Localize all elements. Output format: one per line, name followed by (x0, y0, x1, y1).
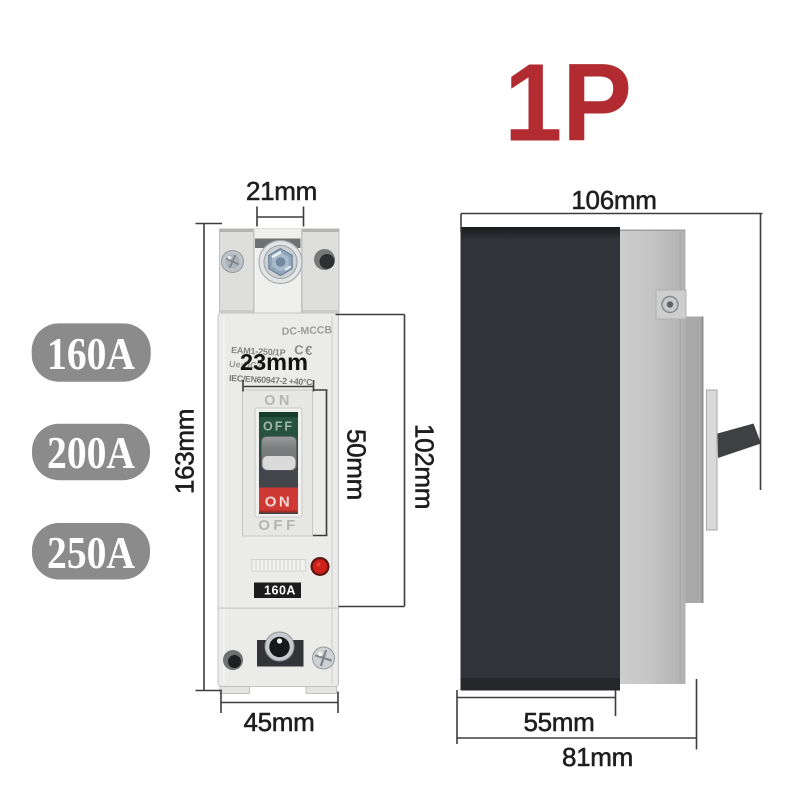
svg-text:163mm: 163mm (170, 409, 200, 494)
svg-text:81mm: 81mm (562, 742, 633, 772)
svg-text:ON: ON (265, 494, 293, 511)
svg-text:DC-MCCB: DC-MCCB (282, 324, 333, 338)
svg-text:OFF: OFF (263, 420, 294, 434)
svg-text:160A: 160A (264, 584, 296, 598)
svg-text:102mm: 102mm (410, 424, 440, 509)
svg-text:1P: 1P (504, 41, 632, 164)
svg-text:50mm: 50mm (342, 429, 372, 500)
svg-text:200A: 200A (47, 428, 135, 478)
svg-text:160A: 160A (47, 329, 135, 379)
svg-text:ON: ON (264, 393, 293, 409)
svg-text:45mm: 45mm (243, 707, 314, 737)
svg-text:106mm: 106mm (571, 185, 656, 215)
svg-text:55mm: 55mm (523, 707, 594, 737)
svg-text:250A: 250A (47, 528, 135, 578)
svg-text:OFF: OFF (258, 517, 299, 534)
svg-text:23mm: 23mm (240, 349, 308, 375)
svg-text:21mm: 21mm (246, 176, 317, 206)
